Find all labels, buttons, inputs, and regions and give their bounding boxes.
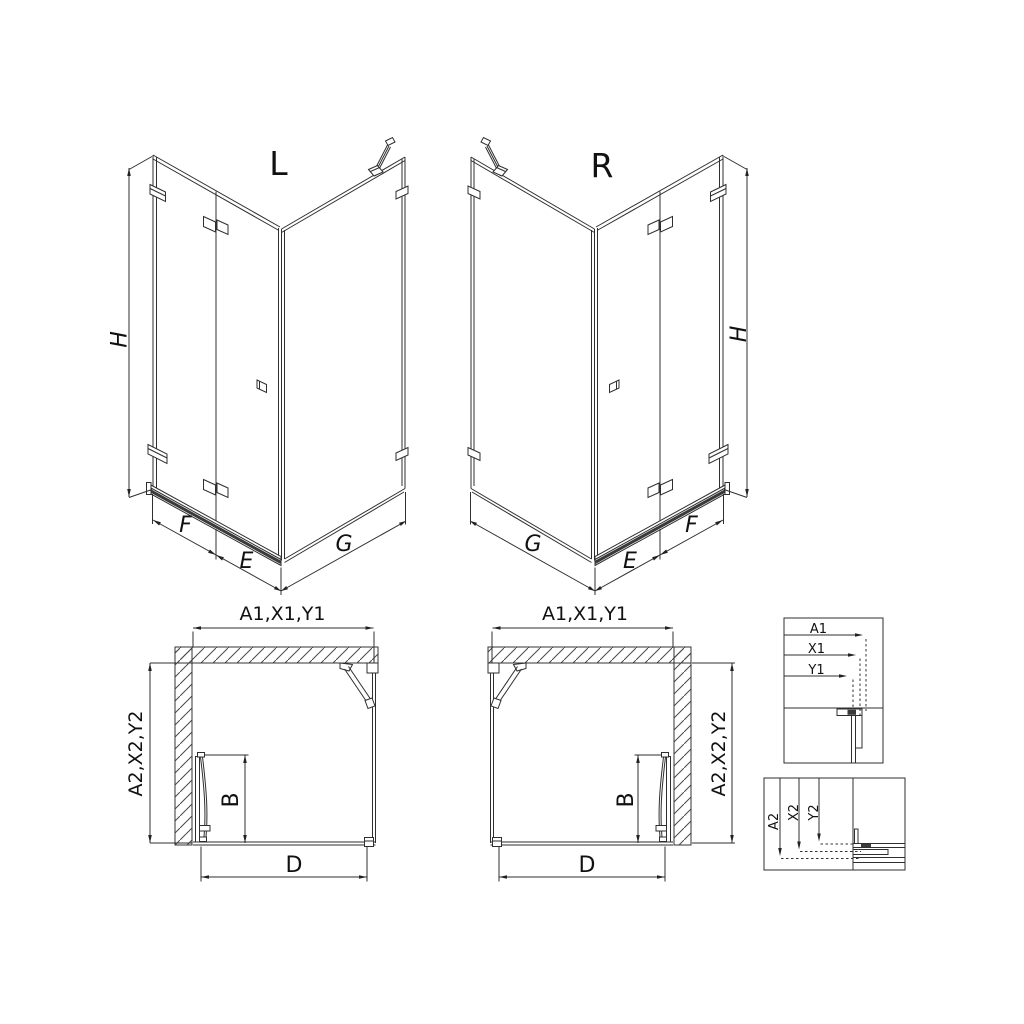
dim-label-f-right: F [685,513,698,538]
dim-front [153,494,282,595]
plan-left-walls [175,647,378,845]
door-hinge-bottom [204,480,216,496]
plan-view-left [193,626,378,881]
door-handle [257,380,267,393]
iso-right-title: R [591,146,614,185]
plan-left-opening-label: D [286,853,303,878]
dim-d [201,847,367,882]
detail-a1-label: A1 [810,622,827,637]
detail-depth-box [764,778,905,870]
plan-left-door-label: B [219,792,244,807]
dim-label-e-right: E [623,549,637,574]
detail-width-box [784,618,883,763]
plan-left-width-label: A1,X1,Y1 [240,603,326,625]
threshold-end-cap [147,483,152,495]
plan-right-opening-label: D [579,853,596,878]
dim-label-g-right: G [524,532,541,557]
detail-a2-label: A2 [767,813,782,830]
wall-profile-end [367,663,378,673]
detail-y2-label: Y2 [807,804,822,821]
plan-right-door-label: B [614,792,639,807]
dim-label-e-left: E [240,549,254,574]
technical-drawing: L R H F E G H G E F A1,X1,Y1 A1,X1,Y1 A2… [0,0,1024,1024]
plan-right-walls [488,647,691,845]
door-hinge-top [204,217,216,233]
corner-fitting [365,838,374,847]
door-open [196,753,211,843]
iso-view-left [127,138,408,596]
support-bar [369,138,396,177]
detail-y1-label: Y1 [807,663,824,678]
iso-view-right [468,138,749,596]
plan-right-width-label: A1,X1,Y1 [542,603,628,625]
plan-right-depth-label: A2,X2,Y2 [708,711,730,797]
plan-left-depth-label: A2,X2,Y2 [125,711,147,797]
drawing-canvas: L R H F E G H G E F A1,X1,Y1 A1,X1,Y1 A2… [0,0,1024,1024]
detail-x2-label: X2 [787,804,802,821]
dim-label-f-left: F [179,513,192,538]
dim-label-height-left: H [108,331,133,348]
wall-bracket-bottom [148,445,167,464]
plan-view-right [488,626,673,881]
detail-x1-label: X1 [808,642,825,657]
iso-left-title: L [269,144,288,183]
wall-bracket-top [150,185,166,202]
dim-label-height-right: H [727,326,752,343]
dim-label-g-left: G [335,532,352,557]
door-knob [200,826,211,832]
